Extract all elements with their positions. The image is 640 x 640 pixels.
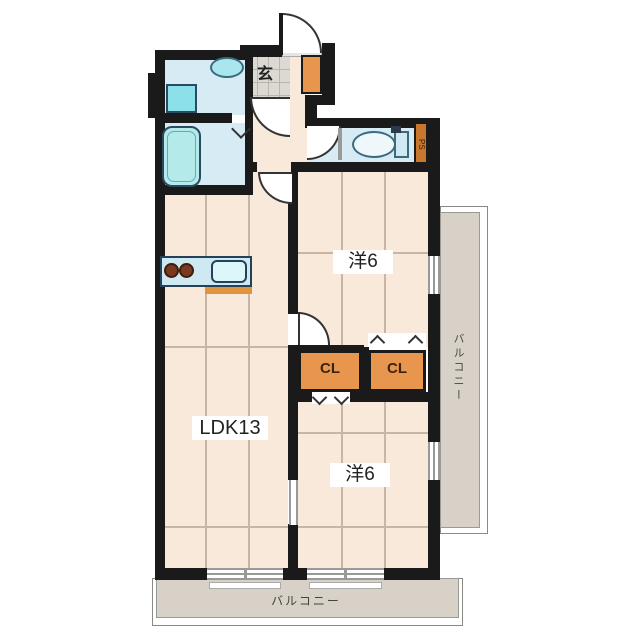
- stove-burner-icon: [164, 263, 179, 278]
- entrance-label: 玄: [252, 60, 278, 80]
- window: [428, 256, 440, 294]
- wall: [350, 392, 363, 402]
- wall: [288, 345, 364, 353]
- pipe-space-label: PS: [416, 128, 426, 160]
- wall: [155, 50, 253, 60]
- stove-burner-icon: [179, 263, 194, 278]
- entry-door-arc: [282, 13, 322, 53]
- bedroom-lower-floor-line: [298, 432, 428, 434]
- entry-door-leaf: [279, 13, 283, 55]
- wall: [362, 392, 440, 402]
- bedroom-upper-label: 洋6: [333, 250, 393, 274]
- bathtub-inner-line: [167, 131, 196, 182]
- wall: [148, 73, 165, 118]
- wall: [288, 345, 298, 480]
- balcony-right-label: バルコニー: [448, 318, 466, 418]
- washbasin-icon: [210, 57, 244, 78]
- ldk-floor-line: [165, 346, 288, 348]
- wall: [283, 568, 307, 580]
- balcony-threshold: [209, 582, 281, 589]
- wall: [362, 347, 369, 394]
- balcony-bottom-label: バルコニー: [241, 592, 371, 608]
- wall: [298, 392, 312, 402]
- floor-plan-canvas: { "title": "apartment-floor-plan", "labe…: [0, 0, 640, 640]
- window: [428, 442, 440, 480]
- toilet-button-icon: [391, 126, 401, 133]
- balcony-threshold: [309, 582, 382, 589]
- ldk-floor-line: [248, 195, 250, 568]
- shoe-cabinet: [301, 55, 322, 94]
- ldk-label: LDK13: [192, 416, 268, 440]
- wall: [155, 113, 232, 123]
- toilet-bowl-icon: [352, 131, 396, 158]
- window-mullion: [344, 568, 347, 580]
- bedroom-lower-floor-line: [298, 526, 428, 528]
- wall: [428, 118, 440, 580]
- bedroom-lower-label: 洋6: [330, 463, 390, 487]
- wall: [247, 162, 257, 172]
- wall: [155, 568, 207, 580]
- toilet-tank-icon: [394, 131, 409, 158]
- counter-edge: [205, 287, 252, 294]
- wall: [384, 568, 440, 580]
- ldk-floor-line: [165, 526, 288, 528]
- toilet-door-leaf: [338, 128, 342, 160]
- ldk-floor-line: [205, 195, 207, 568]
- washing-machine-icon: [166, 84, 197, 113]
- closet-right-label: CL: [371, 360, 423, 382]
- window-mullion: [244, 568, 247, 580]
- ldk-floor: [165, 195, 288, 570]
- sliding-door: [289, 480, 298, 525]
- closet-left-label: CL: [304, 360, 356, 382]
- kitchen-sink-icon: [211, 260, 247, 283]
